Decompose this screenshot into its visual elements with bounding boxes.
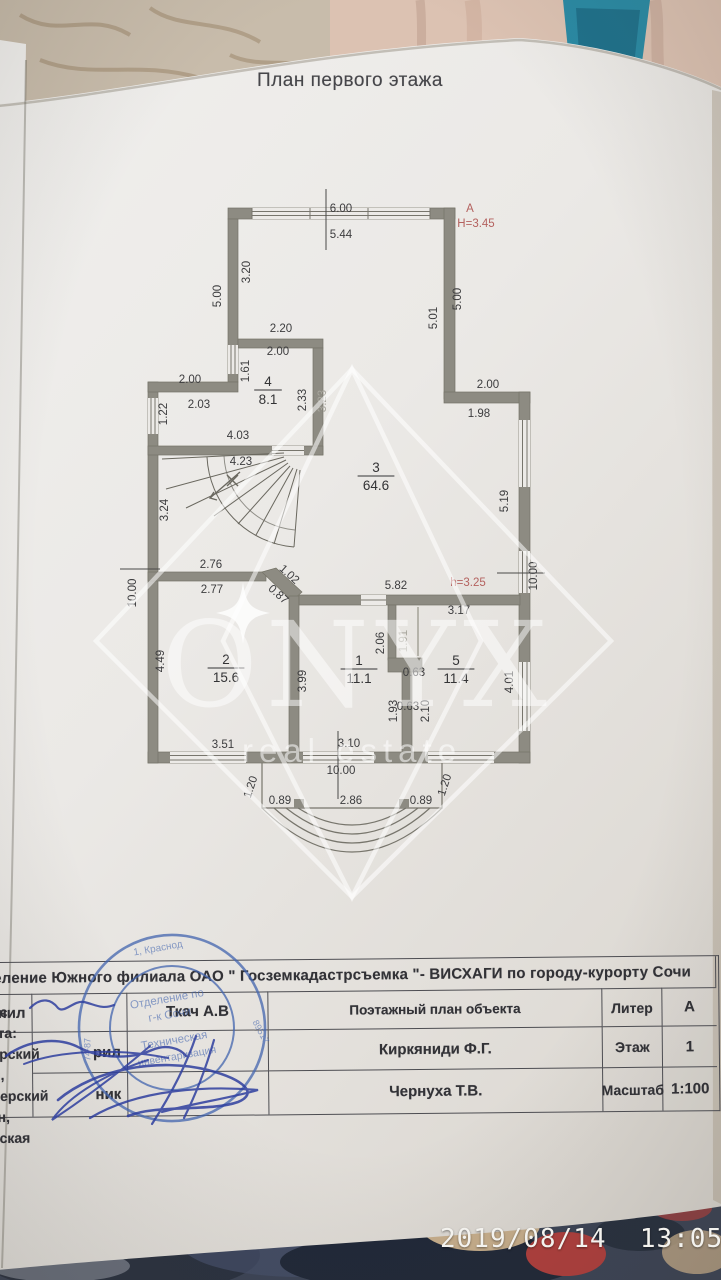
address-label: Адрес объекта: bbox=[0, 1001, 32, 1044]
signature-cell-3 bbox=[128, 1070, 269, 1115]
address-cell: Адрес объекта: Краснодарский край, г.Соч… bbox=[0, 1032, 33, 1118]
name-cell-2: Киркяниди Ф.Г. bbox=[269, 1026, 603, 1070]
camera-timestamp: 2019/08/14 13:05 bbox=[440, 1224, 710, 1254]
photo-of-floor-plan-document: 6.005.44АH=3.453.205.005.015.002.202.001… bbox=[0, 0, 721, 1280]
floor-value: 1 bbox=[663, 1025, 717, 1067]
role-label-3: ник bbox=[33, 1072, 128, 1117]
signature-cell-1 bbox=[32, 993, 127, 1032]
liter-label: Литер bbox=[602, 988, 662, 1027]
doc-type-cell: Поэтажный план объекта bbox=[268, 988, 602, 1029]
address-line2: ул.Брянская bbox=[0, 1127, 30, 1149]
scale-label: Масштаб bbox=[603, 1067, 663, 1112]
scale-value: 1:100 bbox=[663, 1066, 717, 1111]
liter-value: А bbox=[662, 987, 716, 1026]
page-title: План первого этажа bbox=[180, 70, 520, 92]
title-block-table: Отделение Южного филиала ОАО " Госземкад… bbox=[0, 955, 720, 1118]
name-cell-3: Чернуха Т.В. bbox=[269, 1067, 603, 1114]
name-cell-1: Ткач А.В bbox=[127, 991, 268, 1030]
signature-cell-2 bbox=[128, 1029, 269, 1071]
floor-label: Этаж bbox=[603, 1026, 663, 1068]
